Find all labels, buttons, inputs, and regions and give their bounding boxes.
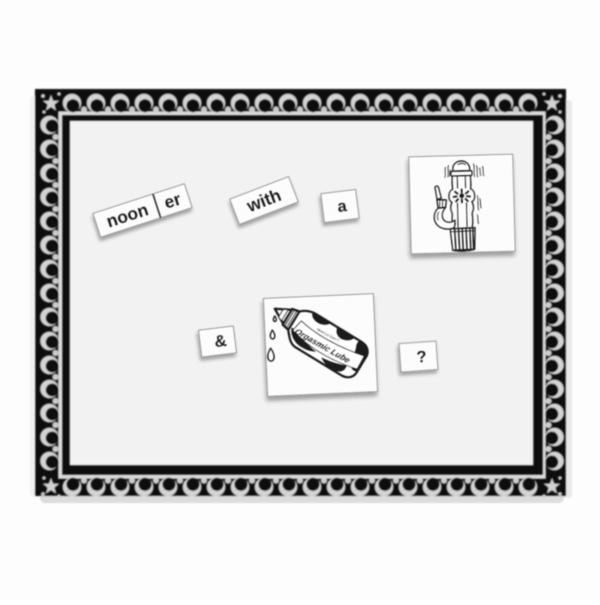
svg-text:&: & <box>213 331 228 351</box>
svg-text:?: ? <box>416 348 427 367</box>
